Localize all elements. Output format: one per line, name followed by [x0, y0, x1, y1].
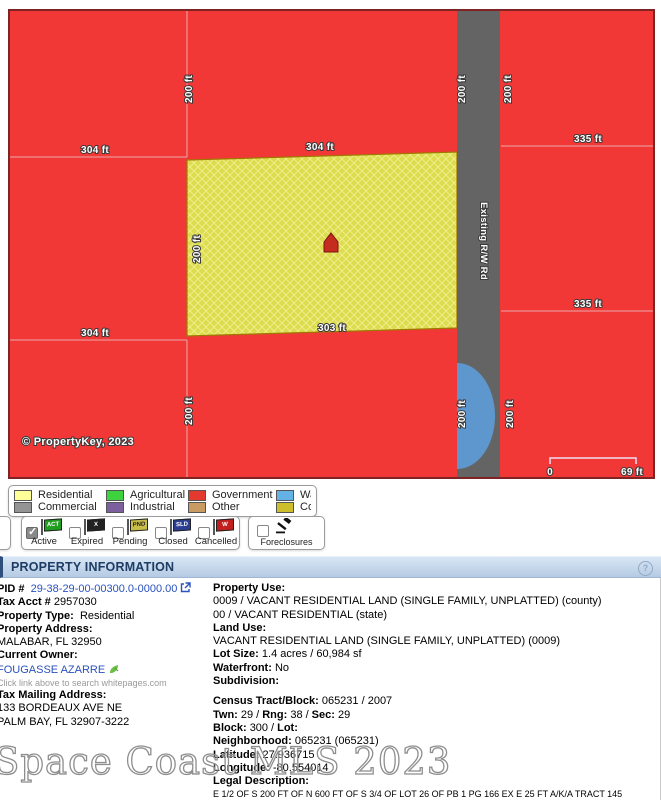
- lot-label: Lot:: [277, 722, 298, 734]
- pid-link[interactable]: 29-38-29-00-00300.0-0000.00: [31, 583, 178, 595]
- closed-flag-icon: SLD: [170, 519, 192, 535]
- legend-label: Condo: [300, 501, 311, 513]
- legend-swatch-government: [188, 490, 206, 501]
- sec-label: Sec:: [312, 709, 335, 721]
- lot-size-value: 1.4 acres / 60,984 sf: [262, 648, 362, 660]
- status-item-active: ✓ ACT Active: [22, 517, 65, 549]
- dim-200-road-east-top: 200 ft: [503, 75, 514, 103]
- expired-flag-icon: X: [84, 519, 106, 535]
- dim-200-left-top: 200 ft: [184, 75, 195, 103]
- whitepages-icon[interactable]: [108, 663, 120, 675]
- legend-label: Commercial: [38, 501, 97, 513]
- legend-item: Agricultural: [106, 489, 188, 501]
- parcel-map: 304 ft 304 ft 303 ft 304 ft 335 ft 335 f…: [8, 9, 655, 479]
- flag-banner: SLD: [173, 518, 191, 531]
- sec-value: 29: [338, 709, 350, 721]
- scale-start-label: 0: [547, 467, 553, 477]
- legend-item: Commercial: [14, 501, 106, 513]
- separator: /: [306, 709, 309, 721]
- tax-mailing-line1: 133 BORDEAUX AVE NE: [0, 702, 212, 715]
- dim-200-parcel-west: 200 ft: [192, 235, 203, 263]
- owner-link[interactable]: FOUGASSE AZARRE: [0, 664, 105, 676]
- cancelled-flag-icon: W: [213, 519, 235, 535]
- info-left-column: PID # 29-38-29-00-00300.0-0000.00 Tax Ac…: [0, 582, 212, 729]
- dim-335-right-bottom: 335 ft: [574, 299, 602, 310]
- gavel-icon: [275, 518, 293, 534]
- help-icon[interactable]: ?: [638, 561, 653, 576]
- property-information-body: PID # 29-38-29-00-00300.0-0000.00 Tax Ac…: [0, 578, 661, 800]
- tax-mailing-line2: PALM BAY, FL 32907-3222: [0, 716, 212, 729]
- external-link-icon[interactable]: [180, 582, 191, 593]
- legend-item: Industrial: [106, 501, 188, 513]
- property-use-label: Property Use:: [213, 582, 659, 595]
- twn-value: 29: [241, 709, 253, 721]
- legend-item: Water: [276, 489, 311, 501]
- tax-acct-label: Tax Acct #: [0, 596, 51, 608]
- page: 304 ft 304 ft 303 ft 304 ft 335 ft 335 f…: [0, 0, 661, 800]
- legend-swatch-water: [276, 490, 294, 501]
- census-value: 065231 / 2007: [322, 695, 392, 707]
- census-label: Census Tract/Block:: [213, 695, 319, 707]
- separator: /: [256, 709, 259, 721]
- rng-value: 38: [290, 709, 302, 721]
- status-item-closed: SLD Closed: [151, 517, 194, 549]
- neighborhood-value: 065231 (065231): [295, 735, 379, 747]
- dim-303-parcel-bottom: 303 ft: [318, 323, 346, 334]
- legend-item: Other: [188, 501, 276, 513]
- filter-panel-stub: [0, 516, 11, 550]
- neighborhood-label: Neighborhood:: [213, 735, 292, 747]
- legend-swatch-other: [188, 502, 206, 513]
- status-item-pending: PND Pending: [108, 517, 151, 549]
- status-item-cancelled: W Cancelled: [194, 517, 237, 549]
- legend-label: Other: [212, 501, 240, 513]
- legend-label: Industrial: [130, 501, 175, 513]
- property-type-label: Property Type:: [0, 610, 74, 622]
- legend-swatch-commercial: [14, 502, 32, 513]
- flag-banner: PND: [130, 518, 148, 531]
- block-label: Block:: [213, 722, 247, 734]
- legend-label: Residential: [38, 489, 92, 501]
- block-value: 300: [250, 722, 268, 734]
- status-item-expired: X Expired: [65, 517, 108, 549]
- status-label: Cancelled: [190, 536, 242, 547]
- subject-parcel: [187, 152, 457, 336]
- dim-200-left-bottom: 200 ft: [184, 397, 195, 425]
- status-label: Foreclosures: [249, 537, 324, 547]
- parcel-map-canvas: 304 ft 304 ft 303 ft 304 ft 335 ft 335 f…: [10, 11, 653, 477]
- pid-label: PID #: [0, 583, 25, 595]
- land-use-value: VACANT RESIDENTIAL LAND (SINGLE FAMILY, …: [213, 635, 659, 648]
- flag-banner: X: [87, 518, 105, 531]
- separator: /: [271, 722, 274, 734]
- legend-swatch-industrial: [106, 502, 124, 513]
- legal-description-label: Legal Description:: [213, 775, 659, 788]
- subdivision-label: Subdivision:: [213, 675, 659, 688]
- current-owner-label: Current Owner:: [0, 649, 212, 662]
- legend-item: Condo: [276, 501, 311, 513]
- property-address-value: MALABAR, FL 32950: [0, 636, 212, 649]
- status-filter-panel: ✓ ACT Active X Expired PND Pending: [21, 516, 240, 550]
- map-legend: Residential Agricultural Government Wate…: [8, 485, 317, 517]
- legend-swatch-residential: [14, 490, 32, 501]
- dim-200-road-east-bottom: 200 ft: [505, 400, 516, 428]
- dim-200-water: 200 ft: [457, 400, 468, 428]
- property-use-state: 00 / VACANT RESIDENTIAL (state): [213, 609, 659, 622]
- legend-label: Water: [300, 489, 311, 501]
- latitude-label: Latitude:: [213, 749, 259, 761]
- legal-description-value: E 1/2 OF S 200 FT OF N 600 FT OF S 3/4 O…: [213, 788, 659, 800]
- longitude-value: -80.554014: [273, 762, 329, 774]
- dim-200-road-west-top: 200 ft: [457, 75, 468, 103]
- waterfront-label: Waterfront:: [213, 662, 272, 674]
- property-use-county: 0009 / VACANT RESIDENTIAL LAND (SINGLE F…: [213, 595, 659, 608]
- tax-mailing-label: Tax Mailing Address:: [0, 689, 212, 702]
- rng-label: Rng:: [262, 709, 287, 721]
- dim-304-parcel-top: 304 ft: [306, 142, 334, 153]
- longitude-label: Longitude:: [213, 762, 270, 774]
- map-copyright: © PropertyKey, 2023: [22, 436, 134, 448]
- flag-banner: W: [216, 518, 234, 531]
- dim-335-right-top: 335 ft: [574, 134, 602, 145]
- waterfront-value: No: [275, 662, 289, 674]
- tax-acct-value: 2957030: [54, 596, 97, 608]
- lot-size-label: Lot Size:: [213, 648, 259, 660]
- dim-304-top-left: 304 ft: [81, 145, 109, 156]
- legend-label: Government: [212, 489, 273, 501]
- info-right-column: Property Use: 0009 / VACANT RESIDENTIAL …: [213, 582, 659, 800]
- foreclosures-filter-panel: Foreclosures: [248, 516, 325, 550]
- dim-304-bottom-left: 304 ft: [81, 328, 109, 339]
- legend-item: Residential: [14, 489, 106, 501]
- flag-banner: ACT: [44, 518, 62, 531]
- legend-swatch-condo: [276, 502, 294, 513]
- property-type-value: Residential: [80, 610, 134, 622]
- pending-flag-icon: PND: [127, 519, 149, 535]
- section-title: PROPERTY INFORMATION: [3, 557, 661, 578]
- scale-end-label: 69 ft: [621, 467, 643, 477]
- legend-label: Agricultural: [130, 489, 185, 501]
- twn-label: Twn:: [213, 709, 238, 721]
- active-flag-icon: ACT: [41, 519, 63, 535]
- latitude-value: 27.936715: [263, 749, 315, 761]
- property-information-header: PROPERTY INFORMATION ?: [0, 556, 661, 578]
- legend-swatch-agricultural: [106, 490, 124, 501]
- road-name-label: Existing R/W Rd: [478, 202, 489, 280]
- foreclosures-checkbox[interactable]: [257, 525, 269, 537]
- property-address-label: Property Address:: [0, 623, 212, 636]
- whitepages-hint: Click link above to search whitepages.co…: [0, 677, 212, 689]
- legend-item: Government: [188, 489, 276, 501]
- land-use-label: Land Use:: [213, 622, 659, 635]
